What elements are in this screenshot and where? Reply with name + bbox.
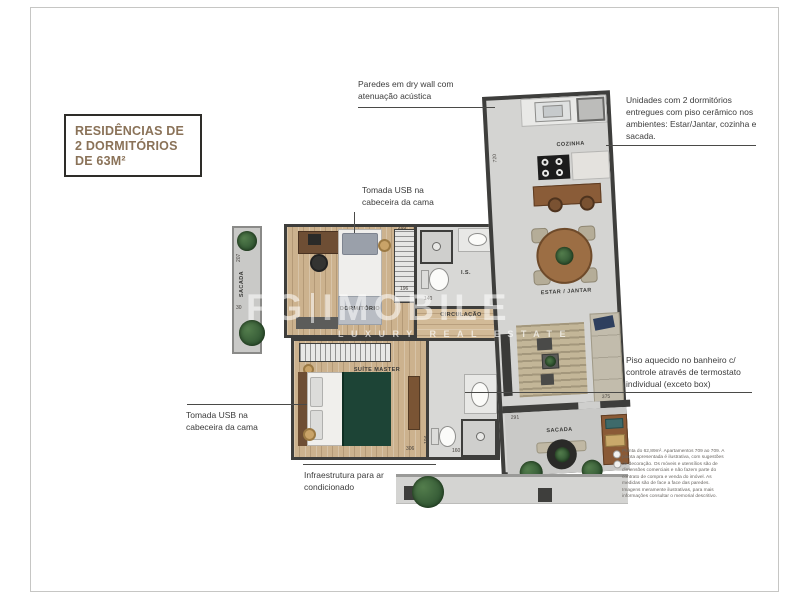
sink-is <box>468 233 487 246</box>
tv-panel-living <box>500 334 512 396</box>
walkway-plant <box>412 476 444 508</box>
dim-suite-bath-height: 104 <box>424 436 430 444</box>
stool-1 <box>547 197 563 213</box>
double-bed-blanket <box>342 372 391 446</box>
bbq-tray <box>605 434 626 447</box>
walkway-post-2 <box>538 488 552 502</box>
watermark-divider <box>311 293 314 323</box>
watermark-brand-left: FG <box>246 287 307 329</box>
badge-line-2: 2 DORMITÓRIOS <box>75 139 191 154</box>
suite-master-label: SUÍTE MASTER <box>348 367 406 373</box>
watermark-tagline: LUXURY REAL ESTATE <box>338 329 573 339</box>
cozinha-label: COZINHA <box>540 140 600 149</box>
pouf-suite-bottom <box>303 428 316 441</box>
desk-laptop <box>308 234 321 245</box>
note-ac: Infraestrutura para ar condicionado <box>304 469 400 493</box>
balcony-left-label: SACADA <box>239 256 245 312</box>
coffee-table-3 <box>541 374 555 386</box>
leader-drywall <box>358 107 495 108</box>
toilet-tank-suite <box>431 428 439 445</box>
pouf-dormitorio <box>378 239 391 252</box>
dim-suite-width: 306 <box>406 446 414 452</box>
desk-chair <box>310 254 328 272</box>
kitchen-sink-basin <box>543 105 564 118</box>
banheiro-label: I.S. <box>456 270 476 276</box>
sink-suite <box>471 382 489 407</box>
leader-ac <box>303 464 436 465</box>
plant-balcony-top <box>237 231 257 251</box>
single-bed-pillows <box>342 233 378 255</box>
coffee-table-1 <box>537 338 553 351</box>
note-usb-top: Tomada USB na cabeceira da cama <box>362 184 458 208</box>
dim-sacada-width: 291 <box>511 414 520 420</box>
leader-usb-top <box>354 212 355 233</box>
stool-2 <box>579 195 595 211</box>
fridge <box>576 97 605 122</box>
leader-heated-floor <box>465 392 752 393</box>
watermark-logo: FG IMOBILE <box>246 286 576 330</box>
bbq-grill <box>605 418 623 429</box>
right-wing: COZINHA 720 ESTAR / JANTAR 375 291 SACAD… <box>482 90 630 476</box>
dim-suite-bath-width: 160 <box>452 448 460 454</box>
shower-head-suite-icon <box>476 432 485 441</box>
dim-wardrobe: 205 <box>398 225 406 231</box>
double-bed-pillow-1 <box>310 377 323 407</box>
dim-living-width: 375 <box>602 394 611 400</box>
leader-units <box>606 145 756 146</box>
toilet-suite <box>439 426 456 447</box>
shower-head-icon <box>432 242 441 251</box>
kitchen-worktop <box>571 150 610 180</box>
note-heated-floor: Piso aquecido no banheiro c/ controle at… <box>626 354 764 390</box>
note-drywall: Paredes em dry wall com atenuação acústi… <box>358 78 476 102</box>
note-usb-left: Tomada USB na cabeceira da cama <box>186 409 282 433</box>
wardrobe-suite <box>299 343 391 362</box>
badge-line-3: DE 63M² <box>75 154 191 169</box>
title-badge: RESIDÊNCIAS DE 2 DORMITÓRIOS DE 63M² <box>64 114 202 177</box>
dim-dormitorio-height: 207 <box>236 254 242 262</box>
tv-panel-suite <box>408 376 420 430</box>
disclaimer-text: Planta do 62,89m². Apartamentos 709 ao 7… <box>622 449 726 501</box>
dim-kitchen-height: 720 <box>492 154 498 163</box>
badge-line-1: RESIDÊNCIAS DE <box>75 124 191 139</box>
dim-balcony-depth: 30 <box>236 305 242 311</box>
note-units: Unidades com 2 dormitórios entregues com… <box>626 94 760 142</box>
leader-usb-left <box>187 404 307 405</box>
watermark-brand-right: IMOBILE <box>322 287 511 329</box>
